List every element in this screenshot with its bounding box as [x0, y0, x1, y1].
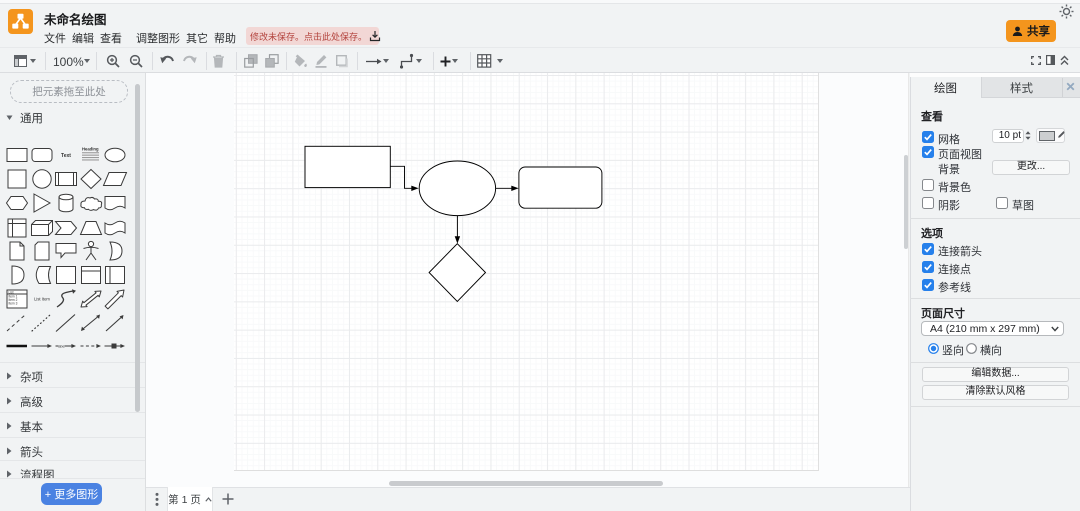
svg-text:Heading: Heading — [82, 146, 99, 151]
svg-text:Item 3: Item 3 — [9, 302, 18, 306]
svg-text:List Item: List Item — [34, 297, 50, 302]
svg-text:label: label — [58, 345, 65, 349]
svg-text:Text: Text — [61, 153, 71, 159]
